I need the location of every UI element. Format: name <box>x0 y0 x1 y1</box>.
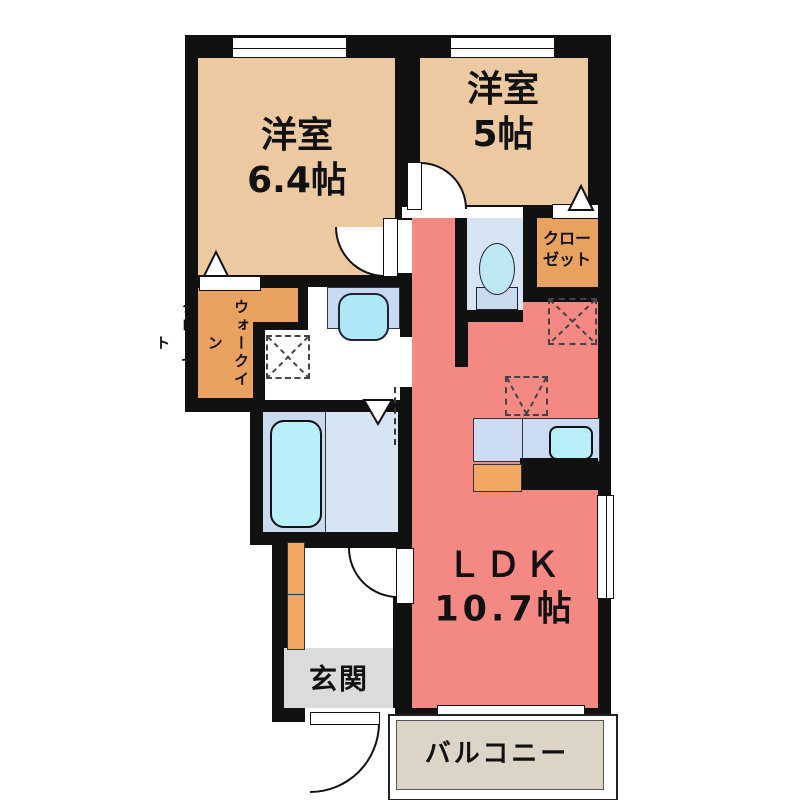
kitchen-cabinet <box>473 464 522 492</box>
label-walk-in-closet: ウォークイン クローゼット <box>200 292 254 396</box>
closet-line2: ゼット <box>543 250 591 271</box>
shoe-cabinet-upper <box>287 542 305 596</box>
label-balcony: バルコニー <box>425 738 569 771</box>
label-room-6-4: 洋室 6.4帖 <box>247 113 347 203</box>
floor-plan: 洋室 6.4帖 洋室 5帖 クロー ゼット ウォークイン クローゼット ＬＤＫ … <box>0 0 800 800</box>
label-ldk: ＬＤＫ 10.7帖 <box>434 544 575 632</box>
walk-in-closet-line1: ウォークイン <box>202 292 255 396</box>
label-room-5: 洋室 5帖 <box>467 67 539 157</box>
shoe-cabinet-lower <box>287 594 305 650</box>
window-top-left <box>232 37 347 58</box>
door-panel-corridor-ldk <box>396 548 414 604</box>
room-6-4-name: 洋室 <box>247 113 347 158</box>
washroom-door-opening <box>396 337 412 387</box>
room-ldk-hall-strip <box>412 218 455 708</box>
washing-machine-space <box>266 335 310 379</box>
closet-line1: クロー <box>543 229 591 250</box>
walk-in-closet-door-threshold <box>199 276 261 291</box>
folding-door-icon-walk-in-closet <box>202 250 230 278</box>
refrigerator-space <box>548 298 597 345</box>
door-panel-room-6-4 <box>383 218 398 277</box>
room-5-name: 洋室 <box>467 67 539 112</box>
room-ldk-right <box>523 302 598 708</box>
label-entrance: 玄関 <box>309 662 369 697</box>
washroom-sliding-door-track <box>394 387 396 445</box>
entrance-door-panel <box>310 712 380 725</box>
x-mark-icon <box>268 337 308 377</box>
walk-in-closet-line2: クローゼット <box>149 292 202 396</box>
kitchen-stove <box>520 458 598 490</box>
kitchen-counter-divider <box>522 418 523 460</box>
window-top-right <box>450 37 555 58</box>
bathtub <box>270 420 322 528</box>
wall-stub-toilet <box>455 322 468 367</box>
washbasin-bowl <box>338 293 389 341</box>
x-mark-icon <box>550 300 595 343</box>
ldk-size: 10.7帖 <box>434 588 575 632</box>
toilet-bowl <box>479 243 515 295</box>
window-right <box>597 495 614 599</box>
v-mark-icon <box>507 378 546 414</box>
folding-door-icon-bathroom <box>362 398 394 426</box>
room-5-size: 5帖 <box>467 112 539 157</box>
kitchen-sink <box>549 426 593 460</box>
folding-door-icon-closet <box>567 184 595 212</box>
ldk-name: ＬＤＫ <box>434 544 575 588</box>
hanging-cabinet-space <box>505 376 548 416</box>
room-6-4-size: 6.4帖 <box>247 158 347 203</box>
entrance-door-swing <box>310 723 380 793</box>
label-closet: クロー ゼット <box>543 229 591 271</box>
door-panel-room-5 <box>407 162 422 210</box>
